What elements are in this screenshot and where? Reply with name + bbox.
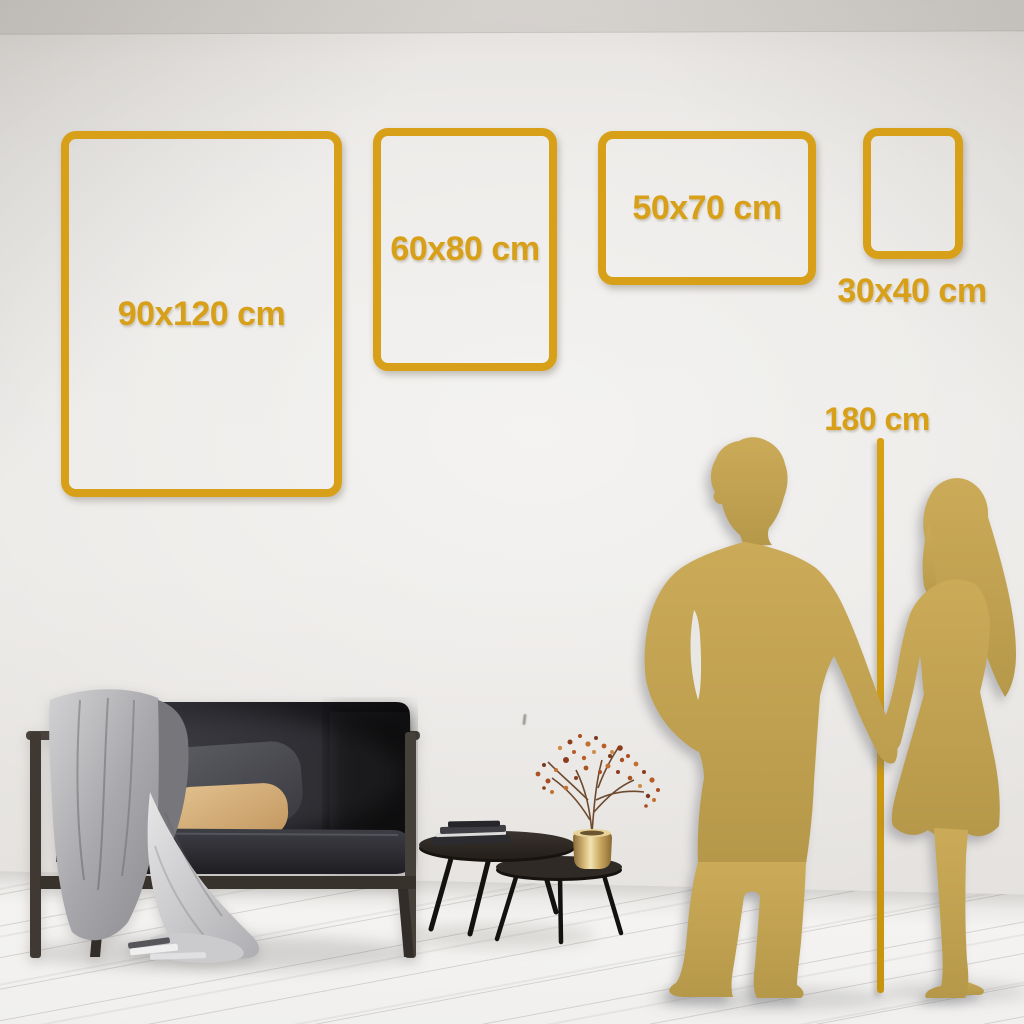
book-stack: [432, 821, 510, 846]
sofa-with-throw-blanket: [0, 660, 460, 1024]
ceiling-shadow-line: [0, 0, 1024, 35]
size-guide-scene: 90x120 cm 60x80 cm 50x70 cm 30x40 cm: [0, 0, 1024, 1024]
gold-vase: [573, 829, 612, 869]
size-frame-label: 90x120 cm: [118, 295, 286, 334]
size-frame-90x120: 90x120 cm: [61, 131, 342, 497]
size-frame-label: 60x80 cm: [390, 230, 539, 269]
size-frame-30x40: [863, 128, 963, 259]
size-frame-60x80: 60x80 cm: [373, 128, 557, 371]
size-frame-50x70: 50x70 cm: [598, 131, 816, 285]
man-silhouette: [645, 437, 898, 998]
woman-silhouette: [877, 478, 1016, 998]
size-frame-label: 50x70 cm: [632, 189, 781, 228]
couple-silhouettes: [620, 428, 1024, 1024]
size-frame-label-30x40: 30x40 cm: [832, 272, 992, 311]
